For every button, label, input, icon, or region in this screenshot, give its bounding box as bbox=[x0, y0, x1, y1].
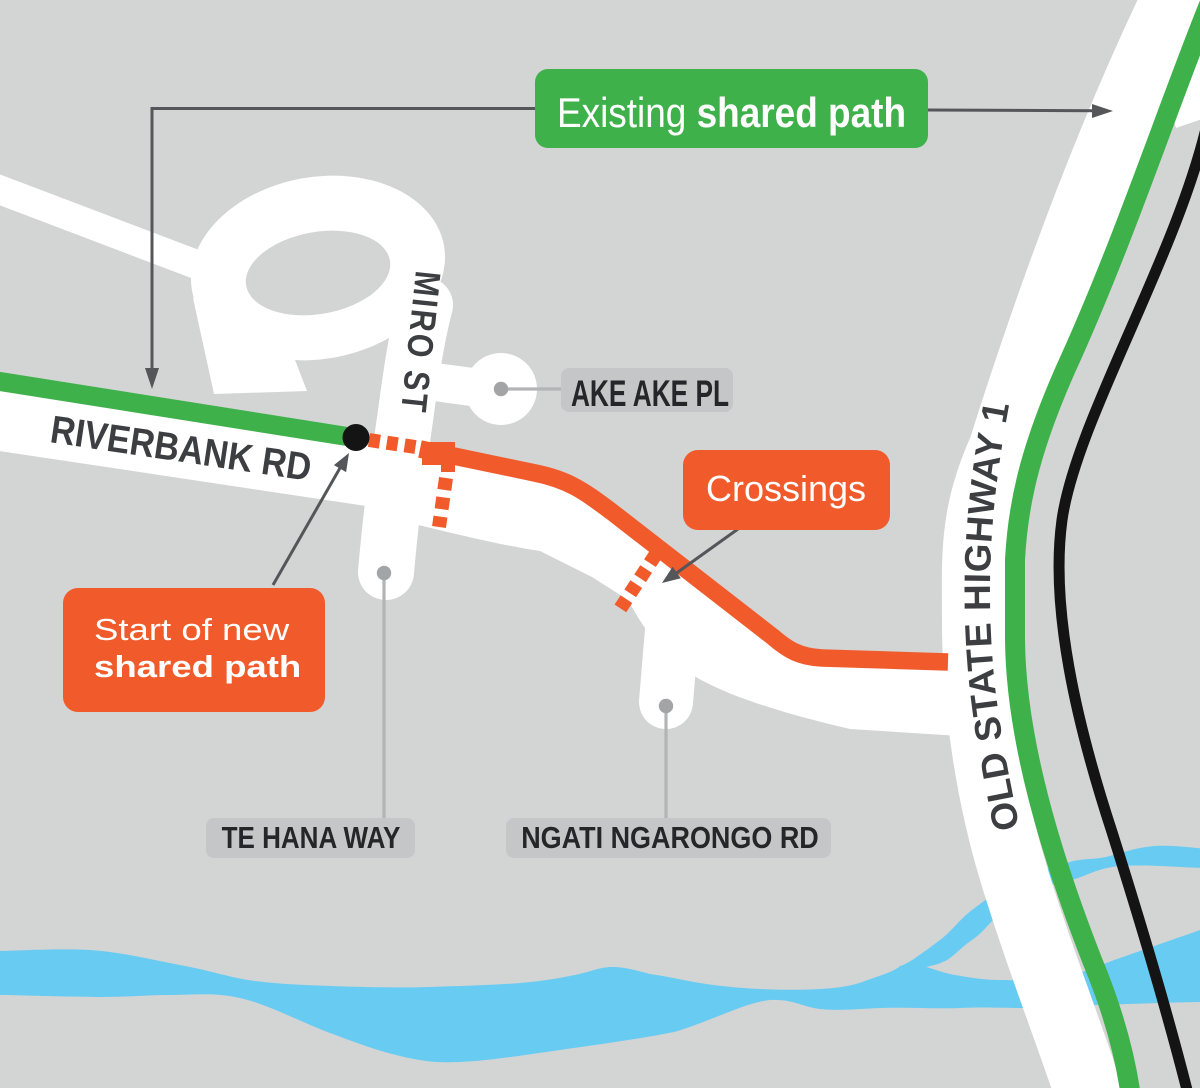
svg-text:TE HANA WAY: TE HANA WAY bbox=[222, 821, 401, 856]
svg-text:AKE AKE PL: AKE AKE PL bbox=[571, 373, 729, 415]
svg-text:Existing shared path: Existing shared path bbox=[557, 90, 906, 137]
svg-text:NGATI NGARONGO RD: NGATI NGARONGO RD bbox=[521, 821, 819, 855]
svg-text:Crossings: Crossings bbox=[706, 468, 866, 509]
svg-text:Start of new: Start of new bbox=[94, 613, 290, 648]
svg-text:shared path: shared path bbox=[94, 650, 301, 685]
